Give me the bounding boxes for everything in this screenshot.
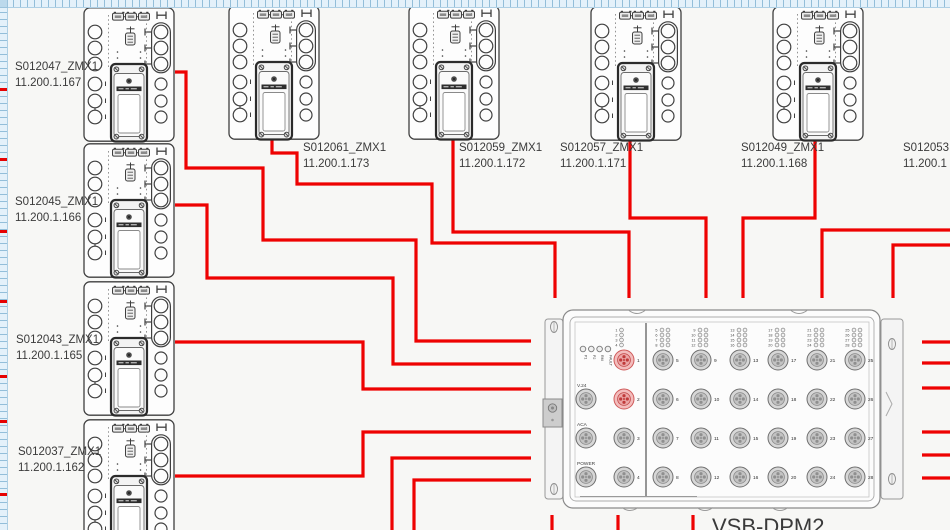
- led-number: 11: [692, 339, 696, 343]
- diagram-canvas[interactable]: P1P2RMFAULTV.24ACAPOWER11223344556677889…: [0, 0, 950, 530]
- panel-port: [576, 389, 596, 409]
- port-number: 5: [676, 358, 679, 364]
- panel-port: [614, 428, 634, 448]
- ruler-marker: [0, 493, 7, 496]
- panel-port: [576, 428, 596, 448]
- panel-port: [845, 428, 865, 448]
- port-number: 6: [676, 397, 679, 403]
- port-number: 9: [714, 358, 717, 364]
- led-number: 3: [615, 339, 617, 343]
- port-number: 26: [868, 397, 874, 403]
- ruler-marker: [0, 420, 7, 423]
- device-name: S012037_ZMX1: [18, 445, 101, 461]
- device-name: S012061_ZMX1: [303, 141, 386, 157]
- aux-port-label: ACA: [577, 422, 588, 428]
- port-number: 28: [868, 475, 874, 481]
- port-number: 4: [637, 475, 640, 481]
- device-label: S012049_ZMX111.200.1.168: [741, 141, 824, 172]
- panel-port: [691, 389, 711, 409]
- device-ip: 11.200.1.162: [18, 461, 101, 477]
- led-number: 12: [691, 344, 695, 348]
- panel-port: [691, 350, 711, 370]
- panel-port: [807, 389, 827, 409]
- device-label: S012045_ZMX111.200.1.166: [15, 195, 98, 226]
- led-number: 24: [807, 344, 811, 348]
- aux-port-label: V.24: [577, 383, 587, 389]
- panel-port: [653, 350, 673, 370]
- device-ip: 11.200.1.173: [303, 157, 386, 173]
- aux-port-label: POWER: [577, 461, 596, 467]
- panel-port: [807, 428, 827, 448]
- port-number: 22: [830, 397, 836, 403]
- status-led-label: P2: [592, 355, 596, 359]
- port-number: 15: [753, 436, 759, 442]
- device-ip: 11.200.1.171: [560, 157, 643, 173]
- port-number: 14: [753, 397, 759, 403]
- port-number: 13: [753, 358, 759, 364]
- led-number: 26: [845, 334, 849, 338]
- led-number: 10: [691, 334, 695, 338]
- ruler-marker: [0, 158, 7, 161]
- port-number: 16: [753, 475, 759, 481]
- led-number: 15: [730, 339, 734, 343]
- device-ip: 11.200.1: [903, 157, 949, 173]
- wire-3[interactable]: [175, 432, 531, 476]
- device-label: S01205311.200.1: [903, 141, 949, 172]
- panel-title: VSB-DPM2: [712, 514, 824, 530]
- wire-11[interactable]: [893, 245, 950, 298]
- status-led-label: FAULT: [608, 355, 612, 367]
- led-number: 2: [615, 334, 617, 338]
- device-label: S012043_ZMX111.200.1.165: [16, 333, 99, 364]
- ruler-corner: [0, 0, 8, 8]
- led-number: 23: [807, 339, 811, 343]
- zmx-module-5[interactable]: [409, 6, 499, 140]
- device-name: S012043_ZMX1: [16, 333, 99, 349]
- port-number: 12: [714, 475, 720, 481]
- device-name: S012053: [903, 141, 949, 157]
- led-number: 9: [693, 329, 695, 333]
- panel-port: [691, 467, 711, 487]
- device-label: S012059_ZMX111.200.1.172: [459, 141, 542, 172]
- panel-port: [768, 428, 788, 448]
- panel-port: [730, 350, 750, 370]
- led-number: 1: [615, 329, 617, 333]
- status-led-label: P1: [584, 355, 588, 359]
- panel-port: [845, 350, 865, 370]
- led-number: 5: [655, 329, 657, 333]
- panel-port: [730, 467, 750, 487]
- panel-port: [614, 389, 634, 409]
- device-name: S012059_ZMX1: [459, 141, 542, 157]
- port-number: 11: [714, 436, 719, 442]
- led-number: 14: [730, 334, 734, 338]
- led-number: 17: [768, 329, 772, 333]
- led-number: 7: [655, 339, 657, 343]
- panel-port: [614, 350, 634, 370]
- led-number: 28: [845, 344, 849, 348]
- zmx-module-6[interactable]: [591, 7, 681, 141]
- port-number: 17: [791, 358, 797, 364]
- panel-port: [768, 389, 788, 409]
- led-number: 25: [845, 329, 849, 333]
- wire-10[interactable]: [822, 230, 950, 298]
- ruler-marker: [0, 300, 7, 303]
- port-number: 21: [830, 358, 836, 364]
- led-number: 19: [768, 339, 772, 343]
- port-number: 3: [637, 436, 640, 442]
- port-number: 20: [791, 475, 797, 481]
- ruler-marker: [0, 375, 7, 378]
- panel-port: [730, 389, 750, 409]
- device-label: S012057_ZMX111.200.1.171: [560, 141, 643, 172]
- device-name: S012049_ZMX1: [741, 141, 824, 157]
- port-number: 8: [676, 475, 679, 481]
- ruler-left: [0, 0, 8, 530]
- led-number: 27: [845, 339, 849, 343]
- panel-port: [653, 389, 673, 409]
- port-number: 27: [868, 436, 874, 442]
- ruler-marker: [0, 88, 7, 91]
- schematic-scene: P1P2RMFAULTV.24ACAPOWER11223344556677889…: [0, 0, 950, 530]
- device-ip: 11.200.1.172: [459, 157, 542, 173]
- port-number: 25: [868, 358, 874, 364]
- device-name: S012057_ZMX1: [560, 141, 643, 157]
- led-number: 18: [768, 334, 772, 338]
- panel-port: [807, 467, 827, 487]
- led-number: 8: [655, 344, 657, 348]
- port-number: 19: [791, 436, 797, 442]
- panel-port: [653, 467, 673, 487]
- device-label: S012061_ZMX111.200.1.173: [303, 141, 386, 172]
- panel-port: [768, 467, 788, 487]
- port-number: 1: [637, 358, 640, 364]
- device-ip: 11.200.1.165: [16, 349, 99, 365]
- panel-port: [614, 467, 634, 487]
- panel-port: [807, 350, 827, 370]
- panel-port: [768, 350, 788, 370]
- port-number: 10: [714, 397, 720, 403]
- zmx-module-7[interactable]: [773, 7, 863, 141]
- device-name: S012045_ZMX1: [15, 195, 98, 211]
- ruler-top: [0, 0, 950, 8]
- port-number: 7: [676, 436, 679, 442]
- led-number: 6: [655, 334, 657, 338]
- wire-5[interactable]: [414, 480, 531, 530]
- led-number: 22: [807, 334, 811, 338]
- status-led-label: RM: [600, 355, 604, 361]
- led-number: 16: [730, 344, 734, 348]
- port-number: 23: [830, 436, 836, 442]
- panel-port: [845, 389, 865, 409]
- led-number: 13: [730, 329, 734, 333]
- panel-port: [845, 467, 865, 487]
- device-ip: 11.200.1.166: [15, 211, 98, 227]
- zmx-module-4[interactable]: [229, 6, 319, 140]
- port-number: 24: [830, 475, 836, 481]
- port-number: 2: [637, 397, 640, 403]
- panel-port: [691, 428, 711, 448]
- panel-port: [576, 467, 596, 487]
- ruler-marker: [0, 230, 7, 233]
- device-ip: 11.200.1.167: [15, 76, 98, 92]
- vsb-panel[interactable]: P1P2RMFAULTV.24ACAPOWER11223344556677889…: [543, 310, 903, 511]
- panel-port: [653, 428, 673, 448]
- panel-port: [730, 428, 750, 448]
- device-ip: 11.200.1.168: [741, 157, 824, 173]
- device-label: S012037_ZMX111.200.1.162: [18, 445, 101, 476]
- device-label: S012047_ZMX111.200.1.167: [15, 60, 98, 91]
- device-name: S012047_ZMX1: [15, 60, 98, 76]
- port-number: 18: [791, 397, 797, 403]
- led-number: 4: [615, 344, 617, 348]
- led-number: 20: [768, 344, 772, 348]
- led-number: 21: [807, 329, 811, 333]
